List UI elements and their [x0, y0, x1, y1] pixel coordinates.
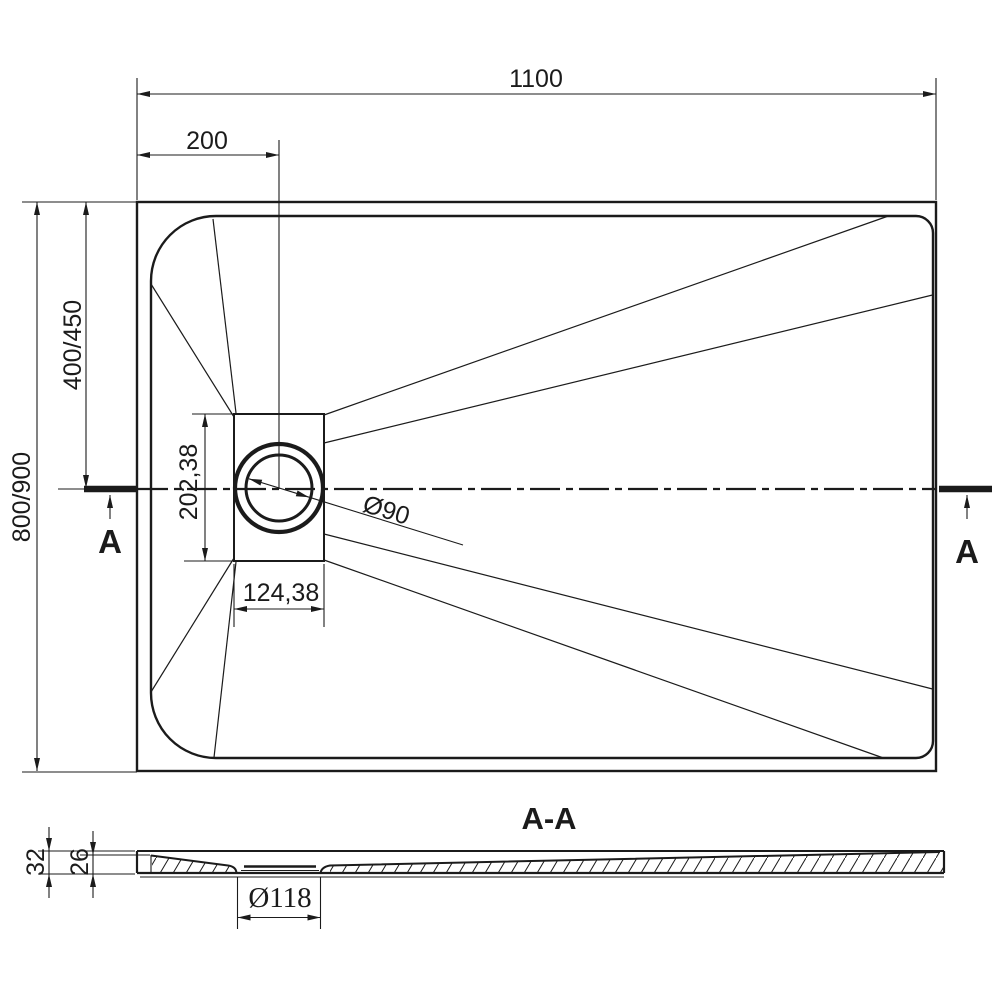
dim-124-38-label: 124,38 [243, 579, 319, 607]
dim-26-label: 26 [66, 848, 94, 876]
drain-recess [241, 867, 319, 871]
dim-diameter-90-label: Ø90 [360, 490, 413, 531]
section-title: A-A [521, 801, 576, 836]
dim-total-width [137, 78, 936, 200]
dim-202-38-label: 202,38 [175, 444, 203, 520]
dim-1100-label: 1100 [509, 65, 563, 93]
tray-inner-edge [151, 216, 933, 758]
drawing-linework [22, 78, 992, 929]
section-mark-right-label: A [955, 533, 979, 570]
technical-drawing-page: 1100 200 400/450 800/900 202,38 124,38 Ø… [0, 0, 1000, 1000]
tray-outer-rim [137, 202, 936, 771]
dim-800-900-label: 800/900 [8, 452, 36, 542]
shower-tray-drawing: 1100 200 400/450 800/900 202,38 124,38 Ø… [0, 0, 1000, 1000]
dim-200-label: 200 [186, 127, 228, 155]
dim-400-450-label: 400/450 [59, 300, 87, 390]
section-mark-left-label: A [98, 523, 122, 560]
slope-fold-lines [151, 217, 933, 758]
dim-drain-offset [137, 140, 279, 489]
top-view [22, 78, 992, 772]
section-view [38, 827, 944, 929]
dim-diameter-118-label: Ø118 [248, 882, 311, 914]
dim-32-label: 32 [22, 848, 50, 876]
